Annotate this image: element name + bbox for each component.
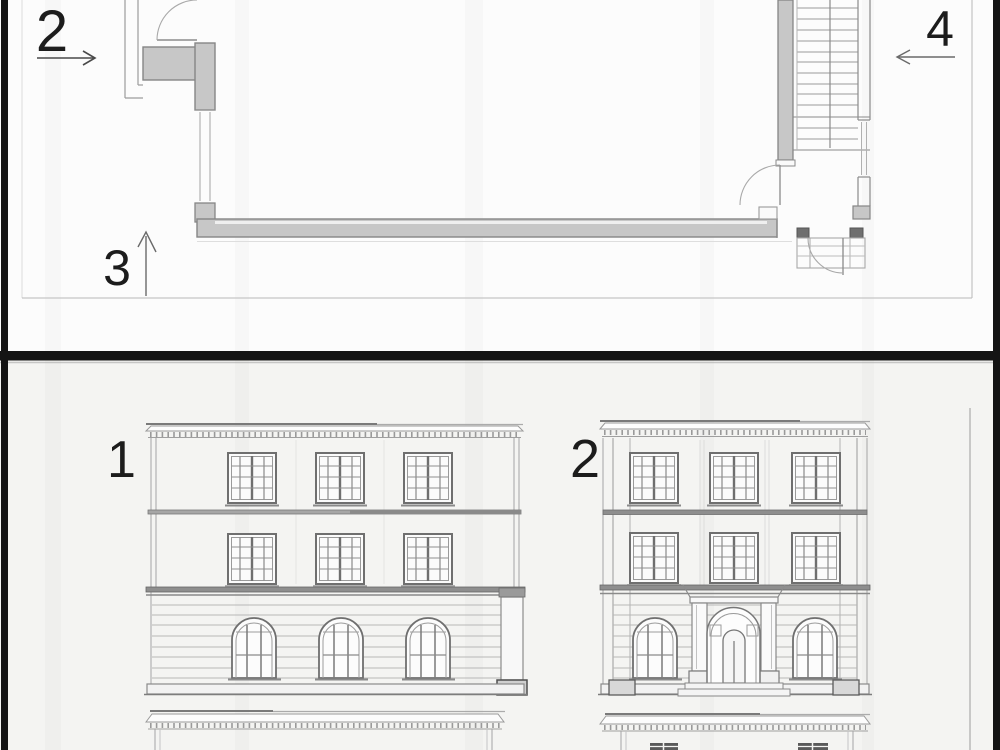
stair-wall bbox=[778, 0, 793, 160]
view-marker-label: 2 bbox=[36, 0, 68, 64]
door-jamb-reveal bbox=[759, 207, 777, 219]
wall-block bbox=[195, 43, 215, 110]
base-plinth bbox=[144, 684, 527, 695]
string-course bbox=[148, 510, 521, 514]
corner-pier bbox=[497, 588, 527, 695]
drawing-canvas: 2 3 4 bbox=[0, 0, 1000, 750]
wall-block bbox=[853, 206, 870, 219]
third-floor-windows bbox=[225, 453, 455, 506]
entrance-step bbox=[678, 689, 790, 696]
second-floor-windows bbox=[225, 534, 455, 586]
scanned-architectural-drawing: 2 3 4 bbox=[0, 0, 1000, 750]
wall-block bbox=[143, 47, 197, 80]
entrance-step bbox=[685, 683, 783, 689]
right-border bbox=[993, 0, 1000, 750]
elevation-label: 1 bbox=[107, 431, 136, 489]
string-course bbox=[603, 510, 867, 515]
portal-pilaster bbox=[761, 603, 776, 671]
entrance-jamb bbox=[850, 228, 863, 238]
view-marker-label: 3 bbox=[103, 240, 131, 296]
third-floor-windows bbox=[627, 453, 843, 506]
second-floor-windows bbox=[627, 533, 843, 585]
portal-pilaster bbox=[692, 603, 707, 671]
view-marker-label: 4 bbox=[926, 1, 954, 57]
entrance-jamb bbox=[797, 228, 809, 238]
panel-divider bbox=[0, 351, 1000, 361]
left-border bbox=[1, 0, 8, 750]
entrance-portal bbox=[678, 585, 790, 696]
elevation-label: 2 bbox=[570, 429, 600, 489]
